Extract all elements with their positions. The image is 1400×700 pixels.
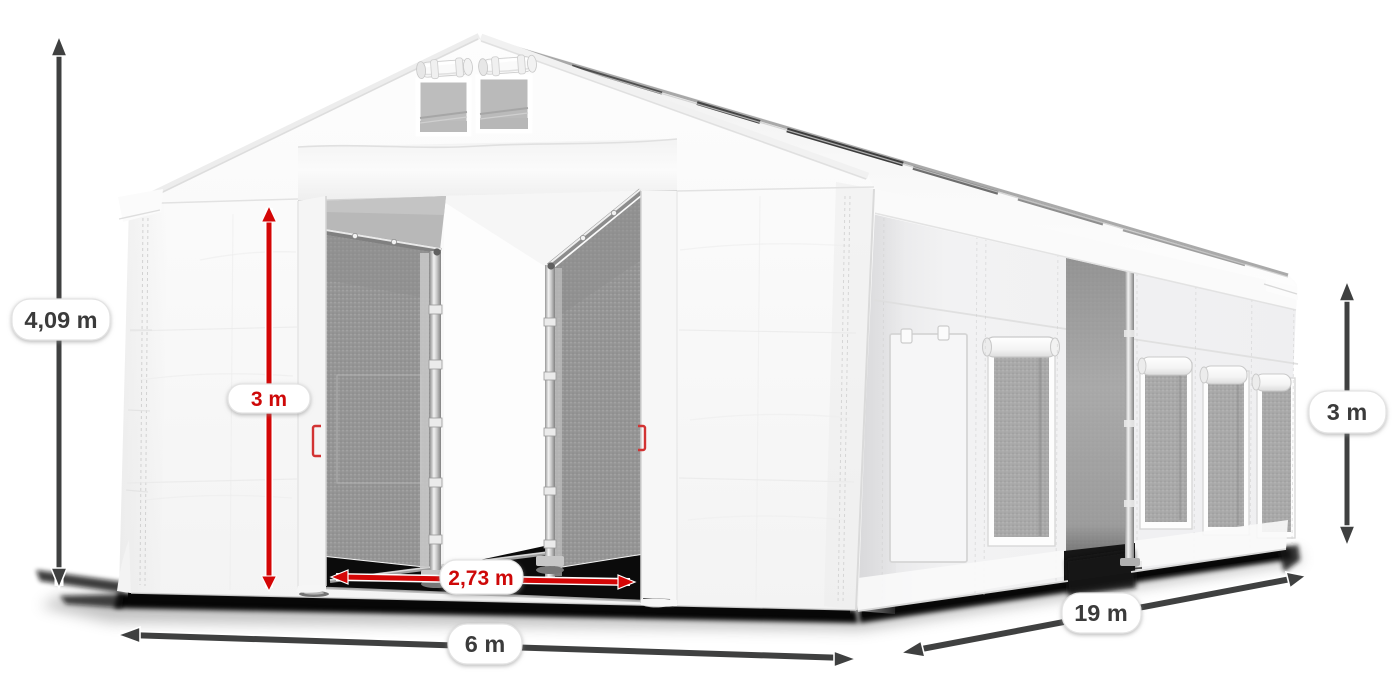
svg-text:3 m: 3 m [251, 388, 287, 411]
svg-text:4,09 m: 4,09 m [24, 307, 97, 333]
svg-text:3 m: 3 m [1327, 399, 1368, 425]
svg-text:6 m: 6 m [465, 631, 506, 657]
svg-text:2,73 m: 2,73 m [448, 567, 513, 590]
svg-text:19 m: 19 m [1074, 600, 1128, 626]
